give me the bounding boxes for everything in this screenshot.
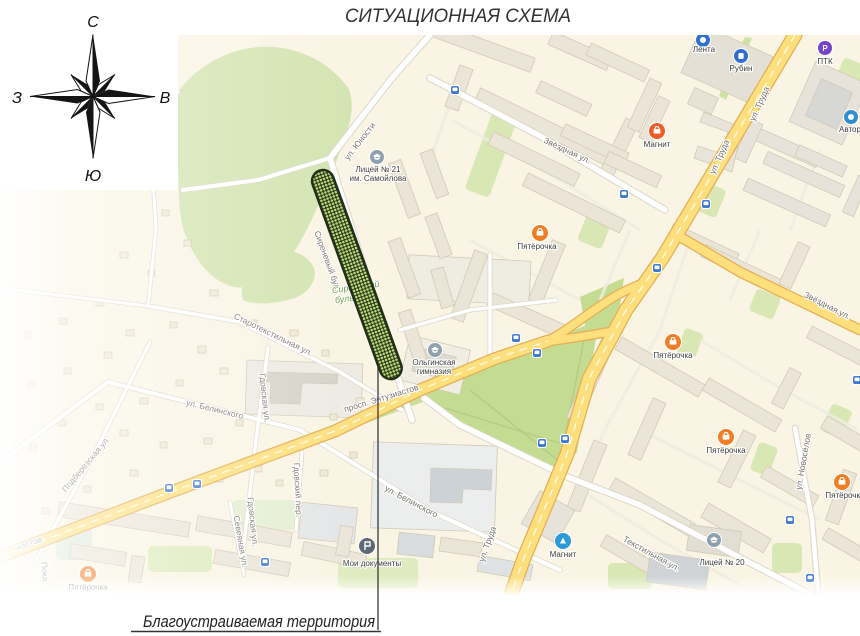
- svg-text:Пятёрочка: Пятёрочка: [517, 242, 557, 251]
- svg-text:З: З: [12, 90, 22, 107]
- svg-text:Р: Р: [822, 44, 828, 53]
- svg-text:Автор: Автор: [839, 125, 860, 134]
- svg-text:В: В: [160, 90, 171, 107]
- svg-text:Ольгинская: Ольгинская: [412, 358, 455, 367]
- svg-text:Лента: Лента: [693, 45, 716, 54]
- svg-text:Рубин: Рубин: [730, 64, 753, 73]
- svg-text:Благоустраиваемая территория: Благоустраиваемая территория: [143, 613, 375, 631]
- svg-text:Пятёрочка: Пятёрочка: [653, 351, 693, 360]
- svg-text:Магнит: Магнит: [550, 550, 577, 559]
- svg-text:гимназия: гимназия: [417, 367, 451, 376]
- svg-text:Лицей № 20: Лицей № 20: [699, 558, 745, 567]
- svg-text:Магнит: Магнит: [644, 140, 671, 149]
- svg-text:ПТК: ПТК: [817, 57, 833, 66]
- svg-text:Пятёрочка: Пятёрочка: [706, 446, 746, 455]
- svg-text:Ю: Ю: [85, 168, 101, 185]
- svg-text:Пятёрочка: Пятёрочка: [825, 491, 860, 500]
- svg-text:С: С: [87, 14, 99, 31]
- svg-text:СИТУАЦИОННАЯ СХЕМА: СИТУАЦИОННАЯ СХЕМА: [345, 6, 571, 27]
